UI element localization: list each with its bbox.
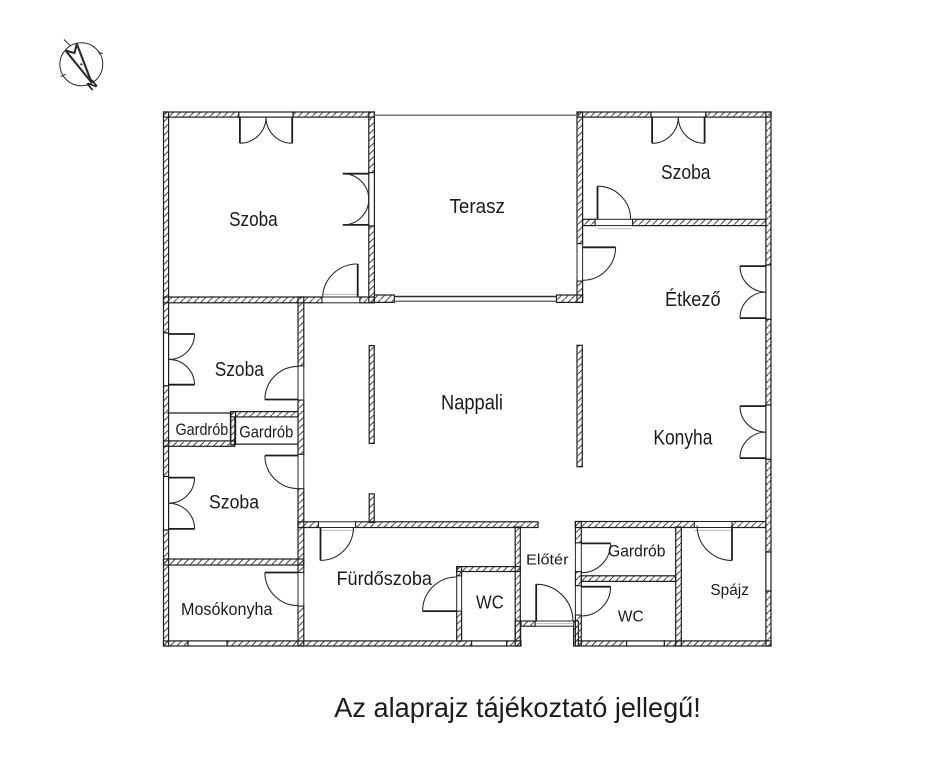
svg-text:WC: WC <box>476 592 504 613</box>
svg-text:Terasz: Terasz <box>450 196 505 218</box>
svg-text:Gardrób: Gardrób <box>239 422 293 441</box>
svg-text:Előtér: Előtér <box>526 552 569 569</box>
svg-text:Nappali: Nappali <box>441 392 503 415</box>
svg-text:Étkező: Étkező <box>665 288 721 311</box>
svg-text:Mosókonyha: Mosókonyha <box>181 599 273 619</box>
svg-text:Szoba: Szoba <box>209 493 259 514</box>
svg-text:Szoba: Szoba <box>229 209 278 231</box>
svg-text:Gardrób: Gardrób <box>176 420 229 439</box>
svg-text:Spájz: Spájz <box>710 582 749 599</box>
svg-text:Szoba: Szoba <box>661 162 711 184</box>
svg-text:Fürdőszoba: Fürdőszoba <box>337 568 433 590</box>
svg-text:Az alaprajz tájékoztató jelleg: Az alaprajz tájékoztató jellegű! <box>334 692 701 723</box>
svg-text:Szoba: Szoba <box>215 359 265 381</box>
svg-text:Gardrób: Gardrób <box>608 542 666 561</box>
svg-text:Konyha: Konyha <box>653 427 712 450</box>
svg-text:WC: WC <box>618 609 644 626</box>
